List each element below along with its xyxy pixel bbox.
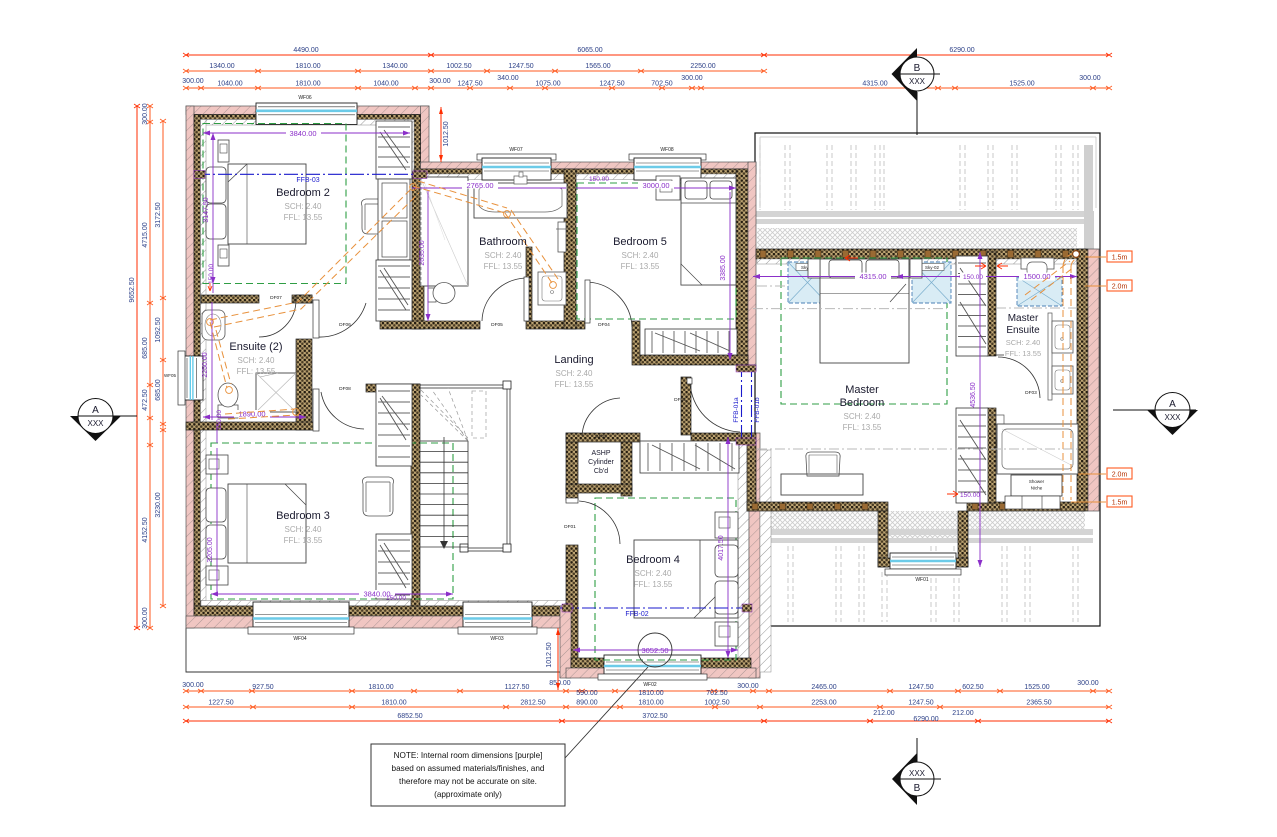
svg-text:FFL: 13.55: FFL: 13.55 — [634, 580, 673, 589]
svg-text:4017.50: 4017.50 — [718, 535, 725, 560]
svg-text:Sky-02: Sky-02 — [925, 265, 940, 270]
svg-text:1012.50: 1012.50 — [546, 642, 553, 667]
svg-text:Bedroom 5: Bedroom 5 — [613, 236, 667, 248]
svg-text:A: A — [1169, 399, 1176, 410]
svg-text:FFB-01b: FFB-01b — [754, 397, 761, 423]
svg-text:Ensuite (2): Ensuite (2) — [229, 341, 282, 353]
svg-text:150.00: 150.00 — [960, 492, 980, 499]
svg-text:150.00: 150.00 — [386, 595, 406, 602]
svg-text:1.5m: 1.5m — [1112, 255, 1128, 262]
svg-text:Bathroom: Bathroom — [479, 236, 527, 248]
svg-text:702.50: 702.50 — [706, 690, 728, 697]
svg-text:(approximate only): (approximate only) — [434, 790, 502, 799]
svg-text:FFB-02: FFB-02 — [625, 611, 648, 618]
svg-text:212.00: 212.00 — [952, 710, 974, 717]
svg-text:3385.00: 3385.00 — [720, 255, 727, 280]
svg-text:3840.00: 3840.00 — [289, 129, 316, 138]
svg-text:XXX: XXX — [909, 769, 926, 778]
svg-text:4152.50: 4152.50 — [142, 517, 149, 542]
svg-text:3172.50: 3172.50 — [155, 202, 162, 227]
svg-text:1810.00: 1810.00 — [381, 700, 406, 707]
svg-text:1075.00: 1075.00 — [535, 81, 560, 88]
svg-text:DF04: DF04 — [598, 322, 610, 328]
svg-text:300.00: 300.00 — [142, 103, 149, 125]
svg-text:FFB-03: FFB-03 — [296, 177, 319, 184]
svg-text:SCH: 2.40: SCH: 2.40 — [285, 202, 322, 211]
svg-text:3230.00: 3230.00 — [155, 492, 162, 517]
svg-text:DF05: DF05 — [491, 322, 503, 328]
svg-text:4490.00: 4490.00 — [293, 47, 318, 54]
svg-text:FFL: 13.55: FFL: 13.55 — [1005, 349, 1041, 358]
svg-text:FFL: 13.55: FFL: 13.55 — [843, 423, 882, 432]
svg-text:Cylinder: Cylinder — [588, 459, 614, 466]
svg-text:A: A — [92, 405, 99, 416]
svg-text:850.00: 850.00 — [549, 680, 571, 687]
svg-text:4715.00: 4715.00 — [142, 222, 149, 247]
svg-text:ASHP: ASHP — [591, 450, 610, 457]
svg-text:702.50: 702.50 — [651, 81, 673, 88]
svg-text:300.00: 300.00 — [429, 78, 451, 85]
svg-text:WF03: WF03 — [490, 636, 504, 642]
svg-text:Master: Master — [1008, 313, 1039, 324]
svg-text:Niche: Niche — [1031, 486, 1043, 491]
svg-text:B: B — [914, 783, 921, 794]
svg-text:Ensuite: Ensuite — [1006, 325, 1040, 336]
svg-text:3052.50: 3052.50 — [641, 646, 668, 655]
svg-text:FFL: 13.55: FFL: 13.55 — [237, 367, 276, 376]
svg-text:WF04: WF04 — [293, 636, 307, 642]
svg-text:1040.00: 1040.00 — [373, 81, 398, 88]
svg-text:NOTE: Internal room dimensions: NOTE: Internal room dimensions [purple] — [394, 751, 543, 760]
svg-text:XXX: XXX — [87, 419, 104, 428]
svg-text:340.00: 340.00 — [497, 75, 519, 82]
svg-text:1340.00: 1340.00 — [382, 63, 407, 70]
svg-text:2365.50: 2365.50 — [1026, 700, 1051, 707]
svg-text:1810.00: 1810.00 — [295, 63, 320, 70]
svg-text:Master: Master — [845, 384, 879, 396]
svg-text:FFL: 13.55: FFL: 13.55 — [621, 262, 660, 271]
svg-text:300.00: 300.00 — [1077, 680, 1099, 687]
svg-text:FFL: 13.55: FFL: 13.55 — [484, 262, 523, 271]
svg-text:300.00: 300.00 — [182, 78, 204, 85]
svg-text:SCH: 2.40: SCH: 2.40 — [844, 412, 881, 421]
svg-text:WF05: WF05 — [164, 373, 176, 378]
svg-text:Bedroom: Bedroom — [840, 397, 885, 409]
svg-text:890.00: 890.00 — [576, 700, 598, 707]
svg-text:1002.50: 1002.50 — [704, 700, 729, 707]
svg-text:Shower: Shower — [1029, 479, 1045, 484]
svg-text:1810.00: 1810.00 — [368, 684, 393, 691]
svg-text:3147.50: 3147.50 — [203, 197, 210, 222]
svg-text:1227.50: 1227.50 — [208, 700, 233, 707]
svg-text:1810.00: 1810.00 — [295, 81, 320, 88]
svg-text:2250.00: 2250.00 — [690, 63, 715, 70]
svg-text:685.00: 685.00 — [155, 379, 162, 401]
svg-text:SCH: 2.40: SCH: 2.40 — [556, 369, 593, 378]
svg-text:1810.00: 1810.00 — [638, 690, 663, 697]
svg-text:4315.00: 4315.00 — [862, 81, 887, 88]
svg-text:Bedroom 4: Bedroom 4 — [626, 554, 680, 566]
svg-text:300.00: 300.00 — [182, 682, 204, 689]
svg-text:DF02: DF02 — [674, 397, 686, 403]
svg-text:DF06: DF06 — [339, 322, 351, 328]
svg-text:3702.50: 3702.50 — [642, 713, 667, 720]
svg-text:SCH: 2.40: SCH: 2.40 — [622, 251, 659, 260]
svg-text:2.0m: 2.0m — [1112, 284, 1128, 291]
svg-text:212.00: 212.00 — [873, 710, 895, 717]
svg-text:2765.00: 2765.00 — [466, 181, 493, 190]
svg-text:9652.50: 9652.50 — [129, 277, 136, 302]
svg-text:4315.00: 4315.00 — [859, 272, 886, 281]
svg-text:Cb'd: Cb'd — [594, 468, 608, 475]
svg-text:FFB-01a: FFB-01a — [733, 397, 740, 423]
svg-text:927.50: 927.50 — [252, 684, 274, 691]
svg-text:SCH: 2.40: SCH: 2.40 — [285, 525, 322, 534]
svg-text:based on assumed materials/fin: based on assumed materials/finishes, and — [392, 764, 545, 773]
svg-text:SCH: 2.40: SCH: 2.40 — [635, 569, 672, 578]
svg-text:3205.00: 3205.00 — [207, 537, 214, 562]
svg-text:6065.00: 6065.00 — [577, 47, 602, 54]
svg-text:1247.50: 1247.50 — [908, 700, 933, 707]
svg-text:1340.00: 1340.00 — [209, 63, 234, 70]
svg-text:2812.50: 2812.50 — [520, 700, 545, 707]
svg-text:1525.00: 1525.00 — [1009, 81, 1034, 88]
svg-text:300.00: 300.00 — [1079, 75, 1101, 82]
svg-text:therefore may not be accurate: therefore may not be accurate on site. — [399, 777, 537, 786]
svg-text:1247.50: 1247.50 — [508, 63, 533, 70]
svg-text:4536.50: 4536.50 — [970, 382, 977, 407]
svg-text:1012.50: 1012.50 — [443, 121, 450, 146]
svg-text:150.00: 150.00 — [216, 410, 223, 430]
svg-text:1247.50: 1247.50 — [599, 81, 624, 88]
svg-text:WF02: WF02 — [643, 682, 657, 688]
svg-text:SCH: 2.40: SCH: 2.40 — [1006, 338, 1041, 347]
svg-text:6852.50: 6852.50 — [397, 713, 422, 720]
svg-text:XXX: XXX — [1164, 413, 1181, 422]
svg-text:Landing: Landing — [554, 354, 593, 366]
svg-text:472.50: 472.50 — [142, 389, 149, 411]
svg-text:300.00: 300.00 — [142, 607, 149, 629]
svg-text:1.5m: 1.5m — [1112, 500, 1128, 507]
svg-text:1247.50: 1247.50 — [908, 684, 933, 691]
svg-text:DF01: DF01 — [564, 524, 576, 530]
svg-text:1565.00: 1565.00 — [585, 63, 610, 70]
svg-text:1127.50: 1127.50 — [505, 684, 530, 691]
svg-text:2.0m: 2.0m — [1112, 472, 1128, 479]
svg-text:685.00: 685.00 — [142, 337, 149, 359]
svg-text:DF03: DF03 — [1025, 390, 1037, 396]
svg-text:1040.00: 1040.00 — [217, 81, 242, 88]
svg-text:1500.00: 1500.00 — [1023, 272, 1050, 281]
svg-text:WF06: WF06 — [298, 95, 312, 101]
svg-text:SCH: 2.40: SCH: 2.40 — [485, 251, 522, 260]
svg-text:1525.00: 1525.00 — [1024, 684, 1049, 691]
svg-text:FFL: 13.55: FFL: 13.55 — [284, 213, 323, 222]
svg-text:Bedroom 3: Bedroom 3 — [276, 510, 330, 522]
svg-text:B: B — [914, 63, 921, 74]
svg-text:WF01: WF01 — [915, 577, 929, 583]
svg-text:DF08: DF08 — [339, 386, 351, 392]
svg-text:3000.00: 3000.00 — [642, 181, 669, 190]
svg-text:602.50: 602.50 — [962, 684, 984, 691]
svg-text:DF07: DF07 — [270, 295, 282, 301]
svg-text:FFL: 13.55: FFL: 13.55 — [555, 380, 594, 389]
svg-text:300.00: 300.00 — [737, 683, 759, 690]
svg-text:2250.00: 2250.00 — [202, 352, 209, 377]
svg-text:150.00: 150.00 — [208, 264, 215, 284]
svg-text:590.00: 590.00 — [576, 690, 598, 697]
svg-text:1002.50: 1002.50 — [446, 63, 471, 70]
svg-text:SCH: 2.40: SCH: 2.40 — [238, 356, 275, 365]
svg-text:DF09: DF09 — [595, 434, 607, 440]
svg-text:2465.00: 2465.00 — [811, 684, 836, 691]
svg-text:6290.00: 6290.00 — [949, 47, 974, 54]
svg-text:1810.00: 1810.00 — [638, 700, 663, 707]
svg-text:WF08: WF08 — [660, 147, 674, 153]
svg-text:XXX: XXX — [909, 77, 926, 86]
svg-text:1092.50: 1092.50 — [155, 317, 162, 342]
svg-text:150.00: 150.00 — [589, 176, 609, 183]
svg-text:Bedroom 2: Bedroom 2 — [276, 187, 330, 199]
svg-text:WF07: WF07 — [509, 147, 523, 153]
svg-text:2253.00: 2253.00 — [811, 700, 836, 707]
svg-text:6290.00: 6290.00 — [913, 716, 938, 723]
svg-text:1247.50: 1247.50 — [457, 81, 482, 88]
svg-text:2635.00: 2635.00 — [419, 240, 426, 265]
svg-text:FFL: 13.55: FFL: 13.55 — [284, 536, 323, 545]
svg-text:300.00: 300.00 — [681, 75, 703, 82]
